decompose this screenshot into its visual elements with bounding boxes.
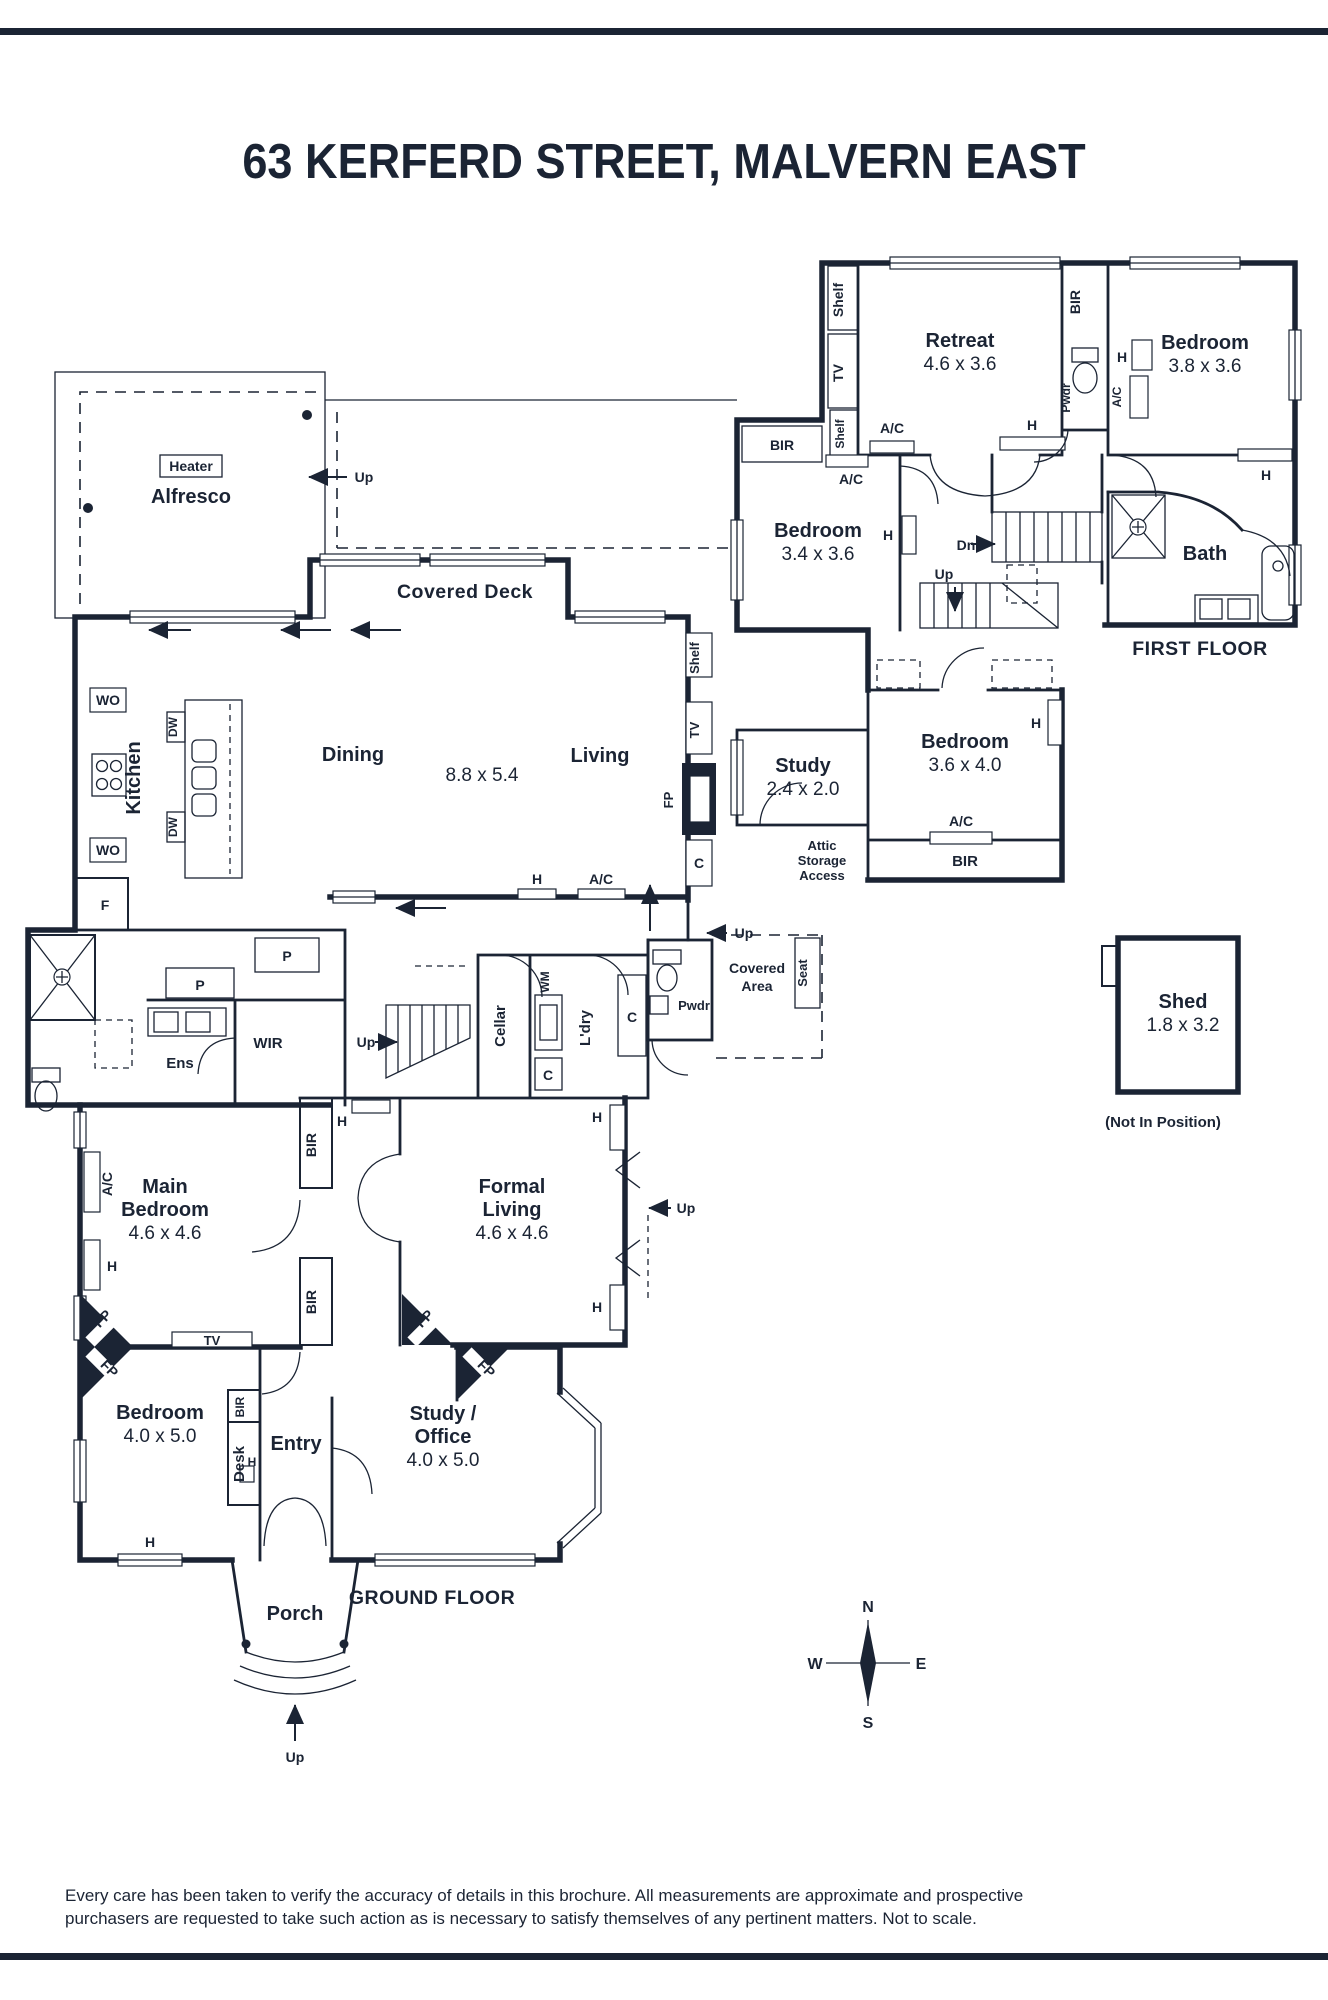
room-label: Porch — [267, 1603, 324, 1625]
slider-arrow — [150, 630, 650, 930]
dw-label: DW — [166, 716, 180, 737]
h-duct — [84, 1240, 100, 1290]
room-label: Bedroom — [121, 1199, 209, 1221]
floorplan-drawing: Retreat 4.6 x 3.6 Bedroom 3.8 x 3.6 Bedr… — [0, 0, 1328, 2000]
h-duct — [1132, 340, 1152, 370]
fp-label: FP — [661, 791, 676, 808]
h-label: H — [145, 1534, 155, 1550]
ac-label: A/C — [949, 813, 973, 829]
shelf-label: Shelf — [830, 283, 846, 318]
room-label: Ens — [166, 1055, 194, 1072]
vanity-icon — [148, 1008, 226, 1036]
h-duct — [610, 1285, 625, 1330]
compass-s: S — [863, 1715, 874, 1732]
toilet-icon — [1072, 348, 1098, 393]
attic-label: Attic — [808, 838, 837, 853]
h-duct — [1000, 437, 1065, 450]
alfresco: Heater Alfresco Up — [55, 372, 373, 618]
compass-icon: N E S W — [807, 1599, 926, 1732]
room-label: Cellar — [492, 1005, 509, 1047]
room-dims: 4.6 x 3.6 — [924, 354, 997, 375]
room-label: Pwdr — [678, 998, 710, 1013]
bir-label: BIR — [1067, 290, 1083, 314]
first-floor-plan: Retreat 4.6 x 3.6 Bedroom 3.8 x 3.6 Bedr… — [731, 257, 1301, 883]
pwdr-label: Pwdr — [1059, 383, 1073, 413]
room-label: Retreat — [926, 330, 995, 352]
up-label: Up — [935, 566, 954, 582]
room-label: Dining — [322, 744, 384, 766]
c-label: C — [694, 855, 704, 871]
c-label: C — [543, 1067, 553, 1083]
vanity-icon — [650, 996, 668, 1014]
kitchen-fixtures — [75, 688, 242, 930]
room-label: Office — [415, 1426, 472, 1448]
ac-unit — [930, 832, 992, 844]
room-label: Main — [142, 1176, 188, 1198]
linen-dashed — [95, 1020, 132, 1068]
room-label: Bedroom — [116, 1402, 204, 1424]
compass-n: N — [862, 1599, 874, 1616]
ac-unit — [826, 455, 868, 467]
floorplan-page: 63 KERFERD STREET, MALVERN EAST — [0, 0, 1328, 2000]
h-label: H — [1117, 349, 1127, 365]
floor-title-ground: GROUND FLOOR — [349, 1587, 515, 1609]
tv-label: TV — [687, 721, 702, 738]
dw-label: DW — [166, 816, 180, 837]
room-label: Covered Deck — [397, 581, 533, 603]
room-dims: 4.6 x 4.6 — [129, 1223, 202, 1244]
ac-label: A/C — [839, 471, 863, 487]
wm-label: WM — [538, 971, 552, 992]
wo-label: WO — [96, 692, 120, 708]
floor-title-first: FIRST FLOOR — [1132, 638, 1268, 660]
h-duct — [518, 889, 556, 899]
powder-room — [648, 940, 712, 1040]
post-dot — [242, 1640, 251, 1649]
ac-label: A/C — [880, 420, 904, 436]
room-label: Bedroom — [921, 731, 1009, 753]
room-dims: 1.8 x 3.2 — [1147, 1015, 1220, 1036]
compass-e: E — [916, 1656, 927, 1673]
room-label: L'dry — [577, 1009, 594, 1046]
room-dims: 3.6 x 4.0 — [929, 755, 1002, 776]
room-label: Alfresco — [151, 486, 231, 508]
p-label: P — [195, 977, 204, 993]
c-label: C — [627, 1009, 637, 1025]
room-label: Formal — [479, 1176, 546, 1198]
room-label: Bedroom — [1161, 332, 1249, 354]
h-duct — [902, 516, 916, 554]
post-dot — [83, 503, 93, 513]
ensuite-fixtures — [30, 935, 319, 1111]
up-label: Up — [357, 1034, 376, 1050]
h-duct — [352, 1100, 390, 1113]
up-label: Up — [355, 469, 374, 485]
room-label: Area — [741, 978, 772, 994]
ac-unit — [578, 889, 625, 899]
room-label: Bath — [1183, 543, 1227, 565]
h-duct — [1048, 700, 1062, 745]
french-door-marks: Up — [616, 1152, 695, 1300]
room-dims: 4.0 x 5.0 — [124, 1426, 197, 1447]
room-label: Living — [483, 1199, 542, 1221]
shelf-label: Shelf — [833, 418, 847, 448]
bir-label: BIR — [770, 437, 794, 453]
h-label: H — [532, 871, 542, 887]
shower-icon — [1112, 495, 1165, 558]
tv-label: TV — [830, 363, 846, 382]
h-label: H — [592, 1109, 602, 1125]
ac-label: A/C — [1110, 386, 1124, 407]
tv-label: TV — [204, 1333, 221, 1348]
ac-unit — [1130, 376, 1148, 418]
heater-label: Heater — [169, 458, 213, 474]
porch: Up Porch — [232, 1560, 358, 1765]
h-label: H — [1027, 417, 1037, 433]
up-label: Up — [286, 1749, 305, 1765]
cooktop-icon — [92, 754, 126, 796]
h-label: H — [337, 1113, 347, 1129]
p-label: P — [282, 948, 291, 964]
room-label: Seat — [795, 959, 810, 987]
compass-w: W — [807, 1656, 823, 1673]
room-dims: 2.4 x 2.0 — [767, 779, 840, 800]
bir-label: BIR — [233, 1396, 247, 1417]
bottom-rule — [0, 1953, 1328, 1960]
room-label: Study — [775, 755, 831, 777]
room-label: Entry — [270, 1433, 322, 1455]
room-label: Living — [571, 745, 630, 767]
up-label: Up — [735, 925, 754, 941]
disclaimer-line1: Every care has been taken to verify the … — [65, 1884, 1285, 1907]
dn-label: Dn — [957, 537, 976, 553]
washing-machine-icon — [535, 995, 562, 1050]
h-duct — [1238, 449, 1292, 461]
h-label: H — [1031, 715, 1041, 731]
room-label: Bedroom — [774, 520, 862, 542]
wo-label: WO — [96, 842, 120, 858]
attic-label: Storage — [798, 853, 846, 868]
h-label: H — [1261, 467, 1271, 483]
ac-label: A/C — [99, 1172, 115, 1196]
room-label: Shed — [1159, 991, 1208, 1013]
room-dims: 3.8 x 3.6 — [1169, 356, 1242, 377]
shed: Shed 1.8 x 3.2 (Not In Position) — [1102, 938, 1238, 1131]
room-dims: 4.0 x 5.0 — [407, 1450, 480, 1471]
shower-icon — [30, 935, 95, 1020]
post-dot — [302, 410, 312, 420]
h-label: H — [107, 1258, 117, 1274]
h-duct — [610, 1105, 625, 1150]
room-dims: 4.6 x 4.6 — [476, 1223, 549, 1244]
ac-unit — [870, 441, 914, 453]
staircase — [376, 966, 470, 1078]
shed-note: (Not In Position) — [1105, 1114, 1221, 1131]
post-dot — [340, 1640, 349, 1649]
room-dims: 3.4 x 3.6 — [782, 544, 855, 565]
bir-label: BIR — [952, 853, 978, 870]
toilet-icon — [653, 950, 681, 991]
bay-window — [557, 1388, 601, 1548]
desk-label: Desk — [231, 1445, 248, 1482]
room-label: Covered — [729, 960, 785, 976]
disclaimer-line2: purchasers are requested to take such ac… — [65, 1907, 1285, 1930]
h-label: H — [248, 1455, 257, 1469]
ground-floor-plan: Heater Alfresco Up Covered Deck — [28, 372, 822, 1765]
ac-label: A/C — [589, 871, 613, 887]
covered-deck: Covered Deck — [325, 400, 737, 603]
attic-label: Access — [799, 868, 845, 883]
room-dims: 8.8 x 5.4 — [446, 765, 519, 786]
h-label: H — [592, 1299, 602, 1315]
shelf-label: Shelf — [687, 641, 702, 673]
bir-label: BIR — [303, 1290, 319, 1314]
up-label: Up — [677, 1200, 696, 1216]
bir-label: BIR — [303, 1133, 319, 1157]
ac-unit — [84, 1152, 100, 1212]
fireplace-icon — [690, 776, 710, 822]
room-label: Kitchen — [123, 741, 145, 814]
vanity-icon — [1195, 595, 1258, 623]
h-label: H — [883, 527, 893, 543]
room-label: Study / — [410, 1403, 477, 1425]
disclaimer: Every care has been taken to verify the … — [65, 1884, 1285, 1930]
room-label: WIR — [253, 1035, 282, 1052]
f-label: F — [101, 897, 110, 913]
